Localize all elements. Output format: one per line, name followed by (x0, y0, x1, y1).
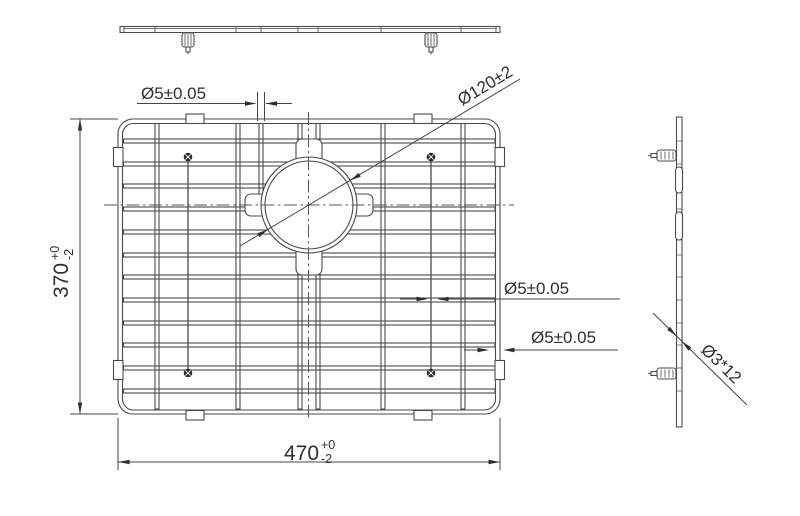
side-bar (677, 117, 683, 427)
arrowhead (245, 101, 257, 105)
dim-wire-top: Ø5±0.05 (137, 84, 292, 121)
dim-wire-frame-label: Ø5±0.05 (531, 328, 596, 347)
arrowhead (257, 230, 268, 238)
dim-wire-top-label: Ø5±0.05 (141, 84, 206, 103)
dim-height-tol-minus: -2 (62, 249, 76, 260)
arrowhead (350, 173, 361, 181)
dim-foot-screw: Ø3*12 (653, 313, 747, 405)
dim-width: 470 +0 -2 (118, 418, 500, 470)
screw (184, 369, 193, 378)
side-foot-bottom (648, 368, 676, 379)
front-foot-right (425, 33, 437, 55)
arrowhead (478, 348, 490, 352)
dim-wire-frame: Ø5±0.05 (464, 328, 618, 352)
dim-width-tol-minus: -2 (321, 452, 332, 466)
screw (427, 153, 436, 162)
arrowhead (266, 101, 278, 105)
dim-drain-circle-label: Ø120±2 (454, 62, 516, 109)
arrowhead (78, 403, 82, 415)
dim-wire-mid-label: Ø5±0.05 (504, 279, 569, 298)
arrowhead (489, 460, 501, 464)
arrowhead (503, 348, 515, 352)
technical-drawing: Ø5±0.05 Ø120±2 Ø5±0.05 Ø5±0.05 (0, 0, 800, 516)
side-edge-view (648, 117, 683, 427)
center-lines (104, 112, 514, 420)
front-bar-ticks (155, 27, 461, 33)
dim-width-tol-plus: +0 (321, 438, 335, 452)
dim-height-value: 370 (50, 263, 73, 298)
front-edge-view (120, 27, 500, 55)
arrowhead (118, 460, 130, 464)
front-foot-left (182, 33, 194, 55)
dim-width-value: 470 (284, 442, 319, 465)
screw (184, 153, 193, 162)
dim-height-tol-plus: +0 (48, 246, 62, 260)
side-foot-top (648, 150, 676, 161)
plan-view (104, 112, 514, 420)
drawing-canvas: Ø5±0.05 Ø120±2 Ø5±0.05 Ø5±0.05 (0, 0, 800, 516)
dim-height: 370 +0 -2 (48, 119, 118, 414)
screw (427, 369, 436, 378)
arrowhead (78, 119, 82, 131)
front-bar (120, 27, 500, 33)
